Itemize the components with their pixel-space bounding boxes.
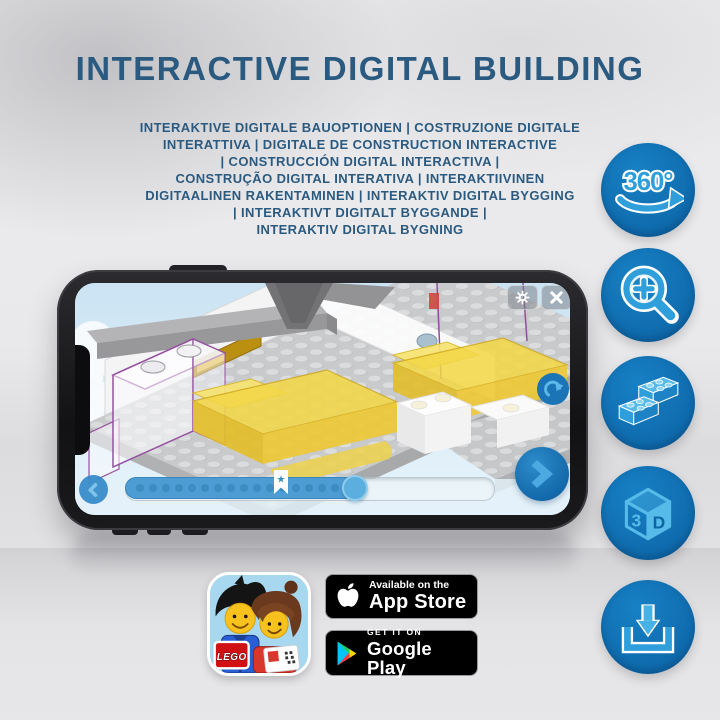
subtitle-line: CONSTRUÇÃO DIGITAL INTERATIVA | INTERAKT… — [100, 170, 620, 187]
boy-face — [225, 603, 255, 633]
progress-slider-handle[interactable] — [342, 475, 368, 501]
multilingual-subtitle: INTERAKTIVE DIGITALE BAUOPTIONEN | COSTR… — [100, 119, 620, 238]
feature-download — [601, 580, 695, 674]
feature-bricks — [601, 356, 695, 450]
google-play-tagline: GET IT ON — [367, 628, 467, 637]
rotation-label: 360° — [623, 168, 673, 196]
svg-text:★: ★ — [277, 475, 286, 486]
next-arrow-icon — [515, 447, 569, 501]
bookmark-star-marker[interactable]: ★ — [274, 470, 288, 496]
feature-3d-view: 3 D — [601, 466, 695, 560]
lego-app-icon[interactable]: LEGO — [207, 572, 311, 676]
phone-notch — [75, 345, 90, 455]
cube-3-label: 3 — [632, 510, 642, 530]
app-store-tagline: Available on the — [369, 580, 466, 591]
previous-step-button[interactable] — [79, 475, 108, 504]
red-detail — [429, 293, 439, 309]
360-rotation-icon: 360° — [612, 154, 684, 226]
rotate-view-button[interactable] — [537, 373, 569, 405]
lego-bricks-icon — [612, 367, 684, 439]
zoom-icon — [612, 259, 684, 331]
next-step-button[interactable] — [515, 447, 569, 501]
subtitle-line: INTERAKTIV DIGITAL BYGNING — [100, 221, 620, 238]
google-play-name: Google Play — [367, 639, 467, 678]
download-icon — [612, 591, 684, 663]
back-chevron-icon — [83, 479, 105, 501]
lego-logo-text: LEGO — [217, 652, 247, 663]
subtitle-line: INTERAKTIVE DIGITALE BAUOPTIONEN | COSTR… — [100, 119, 620, 136]
feature-zoom — [601, 248, 695, 342]
page-title: INTERACTIVE DIGITAL BUILDING — [0, 50, 720, 88]
apple-icon — [336, 582, 360, 611]
phone-reflection — [71, 532, 576, 578]
gear-icon — [515, 290, 530, 305]
subtitle-line: INTERATTIVA | DIGITALE DE CONSTRUCTION I… — [100, 136, 620, 153]
phone-mockup: ★ — [57, 270, 588, 530]
subtitle-line: | INTERAKTIVT DIGITALT BYGGANDE | — [100, 204, 620, 221]
subtitle-line: DIGITAALINEN RAKENTAMINEN | INTERAKTIV D… — [100, 187, 620, 204]
rotate-icon — [541, 377, 565, 401]
close-button[interactable] — [541, 285, 570, 310]
phone-screen: ★ — [75, 283, 570, 515]
lego-app-icon-art: LEGO — [210, 575, 308, 673]
lego-app-promo-image: INTERACTIVE DIGITAL BUILDING INTERAKTIVE… — [0, 0, 720, 720]
google-play-badge[interactable]: GET IT ON Google Play — [325, 630, 478, 676]
subtitle-line: | CONSTRUCCIÓN DIGITAL INTERACTIVA | — [100, 153, 620, 170]
cube-d-label: D — [653, 512, 666, 532]
lego-logo: LEGO — [215, 642, 249, 668]
app-store-badge[interactable]: Available on the App Store — [325, 574, 478, 619]
3d-view-icon: 3 D — [612, 477, 684, 549]
build-progress-fill — [125, 477, 357, 499]
settings-button[interactable] — [507, 285, 538, 310]
close-icon — [549, 290, 564, 305]
feature-360-rotation: 360° — [601, 143, 695, 237]
google-play-icon — [336, 640, 358, 667]
instruction-card — [263, 645, 299, 673]
app-store-name: App Store — [369, 592, 466, 613]
